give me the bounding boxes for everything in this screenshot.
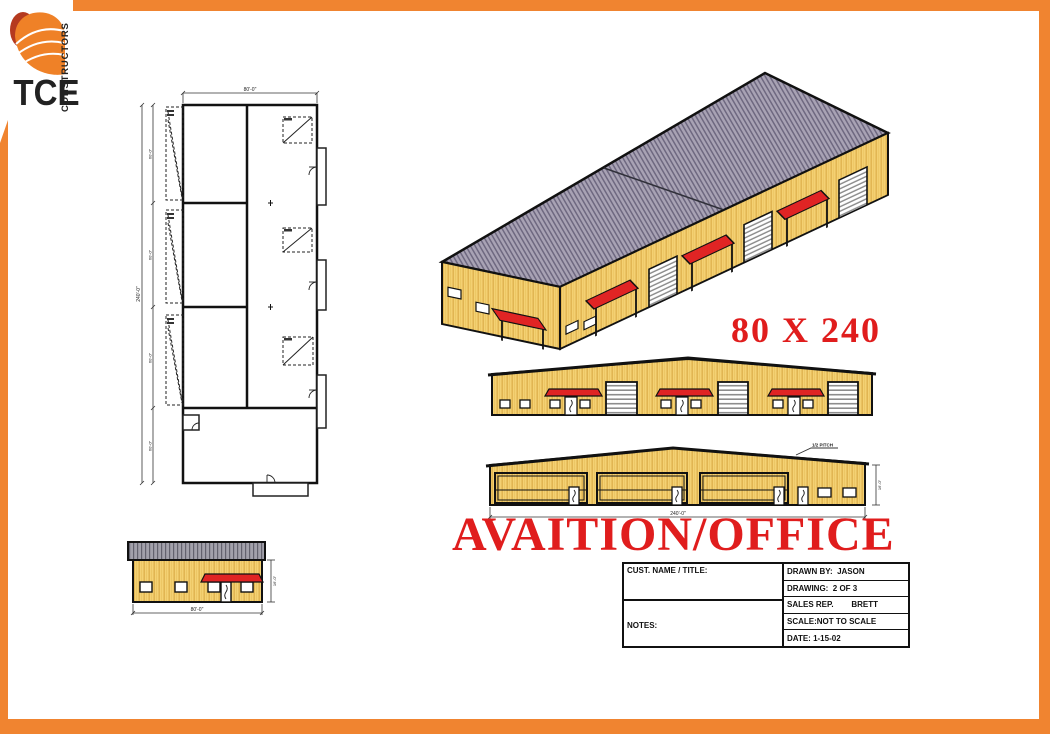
scanned-drawing-page: TCE CONSTRUCTORS 80'-0" 240'-0" 60'-0" 6…	[0, 0, 1050, 734]
plan-dim-length-label: 240'-0"	[136, 286, 142, 302]
elev2-pitch-leader	[796, 448, 838, 455]
customer-name-cell: CUST. NAME / TITLE:	[624, 564, 782, 601]
frame-bar-left	[0, 143, 8, 734]
awning-elevation-drawing	[476, 348, 896, 428]
elev2-dim-height-label: 16'-0"	[877, 479, 882, 490]
end-elevation-drawing: 80'-0" 16'-0"	[113, 528, 303, 623]
logo-subtitle: CONSTRUCTORS	[60, 22, 71, 112]
building-title-label: AVAITION/OFFICE	[452, 511, 895, 559]
tce-logo: TCE CONSTRUCTORS	[6, 4, 86, 114]
title-block: CUST. NAME / TITLE: NOTES: CONCEPTUAL AR…	[622, 562, 910, 648]
plan-dim-bay1-label: 60'-0"	[148, 148, 153, 159]
endelev-dim-height-label: 16'-0"	[272, 575, 277, 586]
building-size-label: 80 X 240	[731, 312, 881, 348]
elev1-rollup-door-3	[828, 382, 858, 415]
notes-label: NOTES:	[627, 621, 779, 630]
title-block-right: DRAWN BY: JASON DRAWING: 2 OF 3 SALES RE…	[784, 564, 908, 646]
frame-bar-left-point	[0, 120, 8, 143]
frame-bar-bottom	[0, 719, 1050, 734]
plan-dim-width-label: 80'-0"	[244, 87, 257, 93]
endelev-awning	[201, 574, 263, 582]
elev1-rollup-door-2	[718, 382, 748, 415]
elev2-pitch-label: 1/2 PITCH	[812, 443, 833, 448]
plan-dim-length	[140, 103, 155, 485]
floor-plan-drawing: 80'-0" 240'-0" 60'-0" 60'-0" 60'-0" 60'-…	[112, 68, 347, 538]
plan-awning-bumpouts	[317, 148, 326, 428]
sales-rep-cell: SALES REP. BRETT	[784, 597, 908, 614]
notes-cell: NOTES: CONCEPTUAL ARCHITECTURAL DRAWING.…	[624, 601, 782, 646]
plan-dim-bay2-label: 60'-0"	[148, 249, 153, 260]
frame-bar-right	[1039, 0, 1050, 734]
drawn-by-cell: DRAWN BY: JASON	[784, 564, 908, 581]
title-block-left: CUST. NAME / TITLE: NOTES: CONCEPTUAL AR…	[624, 564, 784, 646]
date-cell: DATE: 1-15-02	[784, 630, 908, 646]
endelev-roof	[128, 542, 265, 560]
drawing-no-cell: DRAWING: 2 OF 3	[784, 581, 908, 598]
endelev-dim-width-label: 80'-0"	[191, 607, 204, 613]
scale-cell: SCALE:NOT TO SCALE	[784, 614, 908, 631]
plan-dim-bay4-label: 60'-0"	[148, 440, 153, 451]
plan-outer-wall	[183, 105, 317, 483]
elev1-rollup-door-1	[606, 382, 637, 415]
plan-dim-bay3-label: 60'-0"	[148, 352, 153, 363]
plan-hangar-doors	[166, 107, 183, 405]
frame-bar-top	[73, 0, 1050, 11]
